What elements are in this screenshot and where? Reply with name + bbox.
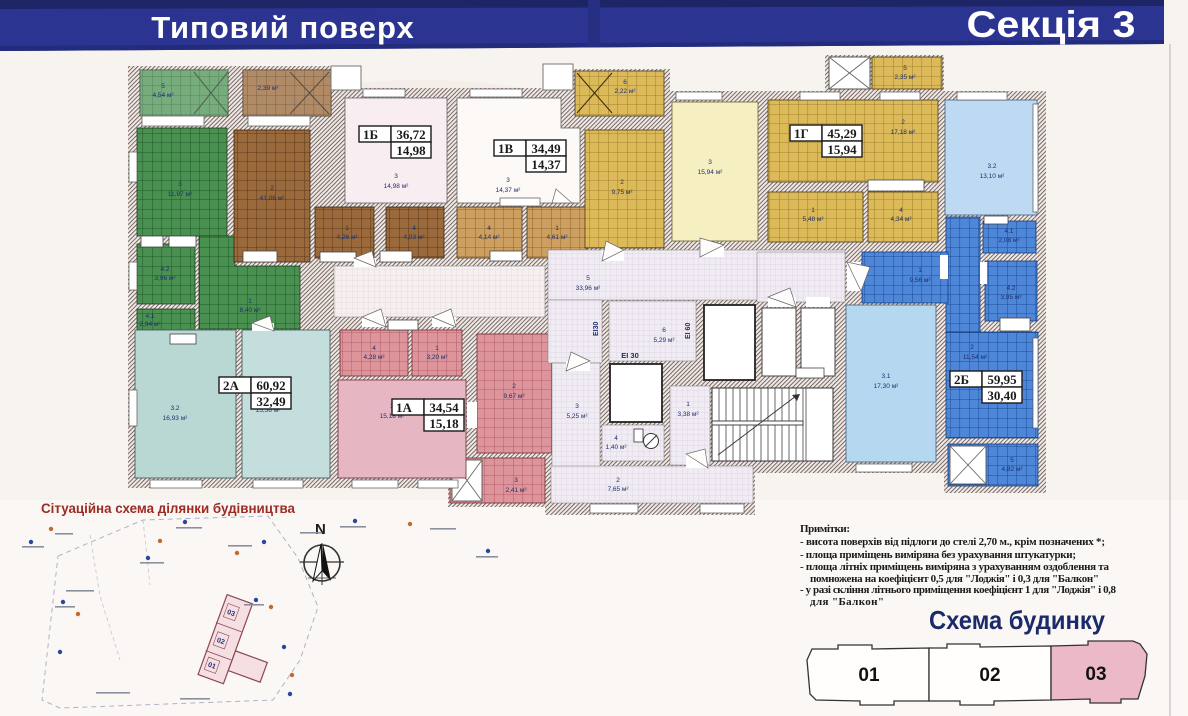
svg-text:3: 3 — [575, 403, 579, 410]
svg-text:1Б: 1Б — [363, 127, 378, 142]
svg-text:2: 2 — [970, 344, 974, 351]
svg-text:3,20 м²: 3,20 м² — [426, 354, 448, 361]
svg-text:5: 5 — [903, 65, 907, 72]
svg-text:для "Балкон": для "Балкон" — [810, 596, 884, 608]
svg-text:Секція 3: Секція 3 — [967, 4, 1136, 45]
svg-text:Схема будинку: Схема будинку — [929, 605, 1105, 635]
svg-text:1В: 1В — [498, 141, 514, 156]
svg-text:3: 3 — [394, 173, 398, 180]
svg-text:41,06 м²: 41,06 м² — [260, 195, 286, 202]
svg-text:5,29 м²: 5,29 м² — [653, 337, 675, 344]
svg-text:34,49: 34,49 — [531, 141, 561, 156]
svg-text:Примітки:: Примітки: — [800, 523, 850, 535]
svg-text:14,37 м²: 14,37 м² — [496, 187, 522, 194]
svg-text:14,98: 14,98 — [396, 143, 426, 158]
svg-text:1: 1 — [555, 225, 559, 232]
svg-text:45,29: 45,29 — [827, 126, 857, 141]
svg-text:2: 2 — [512, 383, 516, 390]
svg-text:9,75 м²: 9,75 м² — [611, 189, 633, 196]
svg-text:13,10 м²: 13,10 м² — [980, 173, 1006, 180]
svg-text:4.1: 4.1 — [145, 313, 154, 320]
svg-text:2: 2 — [616, 477, 620, 484]
svg-text:3,96 м²: 3,96 м² — [154, 275, 176, 282]
svg-text:1: 1 — [435, 345, 439, 352]
svg-text:4,28 м²: 4,28 м² — [363, 354, 385, 361]
svg-text:4,61 м²: 4,61 м² — [546, 234, 568, 241]
svg-text:1: 1 — [345, 225, 349, 232]
svg-text:ЕІ30: ЕІ30 — [593, 321, 600, 336]
svg-text:3: 3 — [178, 181, 182, 188]
svg-text:5: 5 — [1010, 457, 1014, 464]
svg-text:2,08 м²: 2,08 м² — [998, 237, 1020, 244]
svg-text:4,34 м²: 4,34 м² — [890, 216, 912, 223]
svg-text:3.2: 3.2 — [170, 405, 179, 412]
svg-text:1: 1 — [918, 267, 922, 274]
svg-text:2Б: 2Б — [954, 372, 969, 387]
svg-text:2А: 2А — [223, 378, 240, 393]
svg-text:Сітуаційна схема ділянки будів: Сітуаційна схема ділянки будівництва — [41, 501, 295, 516]
svg-text:Типовий поверх: Типовий поверх — [151, 10, 415, 45]
svg-text:9,67 м²: 9,67 м² — [503, 393, 525, 400]
svg-text:8,40 м²: 8,40 м² — [239, 307, 261, 314]
svg-text:7,65 м²: 7,65 м² — [607, 486, 629, 493]
svg-text:1: 1 — [686, 401, 690, 408]
svg-text:3: 3 — [514, 477, 518, 484]
svg-text:3,95 м²: 3,95 м² — [1000, 294, 1022, 301]
svg-text:ЕІ 60: ЕІ 60 — [685, 323, 692, 339]
svg-text:- висота поверхів від підлоги: - висота поверхів від підлоги до стелі 2… — [800, 536, 1105, 548]
svg-text:11,97 м²: 11,97 м² — [168, 191, 193, 198]
svg-text:4: 4 — [487, 225, 491, 232]
svg-text:6: 6 — [623, 79, 627, 86]
svg-text:15,94: 15,94 — [827, 142, 857, 157]
svg-text:5: 5 — [161, 83, 165, 90]
svg-text:59,95: 59,95 — [987, 372, 1017, 387]
svg-text:14,98 м²: 14,98 м² — [384, 183, 410, 190]
svg-text:4.1: 4.1 — [1004, 228, 1013, 235]
svg-text:33,96 м²: 33,96 м² — [576, 285, 602, 292]
svg-text:2: 2 — [270, 185, 274, 192]
svg-text:01: 01 — [858, 665, 880, 686]
svg-text:4,26 м²: 4,26 м² — [336, 234, 358, 241]
svg-text:3: 3 — [708, 159, 712, 166]
svg-text:9,56 м²: 9,56 м² — [909, 277, 931, 284]
svg-text:3: 3 — [506, 177, 510, 184]
svg-text:2,94 м²: 2,94 м² — [139, 321, 161, 328]
svg-text:1: 1 — [811, 207, 815, 214]
svg-text:34,54: 34,54 — [429, 400, 459, 415]
svg-text:2,39 м²: 2,39 м² — [257, 85, 279, 92]
svg-text:11,54 м²: 11,54 м² — [963, 354, 988, 361]
svg-text:- у разі скління літнього прим: - у разі скління літнього приміщення кое… — [800, 584, 1117, 596]
svg-text:2,22 м²: 2,22 м² — [614, 88, 636, 95]
svg-text:16,93 м²: 16,93 м² — [163, 415, 189, 422]
svg-text:4: 4 — [899, 207, 903, 214]
svg-text:4.2: 4.2 — [160, 266, 169, 273]
svg-text:2,41 м²: 2,41 м² — [505, 487, 527, 494]
svg-text:N: N — [315, 521, 326, 538]
svg-text:14,37: 14,37 — [531, 157, 561, 172]
svg-text:2: 2 — [901, 119, 905, 126]
svg-text:15,18: 15,18 — [429, 416, 459, 431]
svg-text:ЕІ 30: ЕІ 30 — [621, 351, 639, 360]
svg-text:02: 02 — [979, 665, 1000, 686]
svg-text:1Г: 1Г — [794, 126, 809, 141]
svg-text:4,03 м²: 4,03 м² — [403, 234, 425, 241]
svg-text:5: 5 — [586, 275, 590, 282]
svg-text:6: 6 — [662, 327, 666, 334]
svg-text:60,92: 60,92 — [256, 378, 285, 393]
svg-text:2,35 м²: 2,35 м² — [894, 74, 916, 81]
svg-text:17,30 м²: 17,30 м² — [874, 383, 900, 390]
svg-text:4,54 м²: 4,54 м² — [152, 92, 174, 99]
svg-text:4: 4 — [614, 435, 618, 442]
svg-text:30,40: 30,40 — [987, 388, 1016, 403]
svg-text:4: 4 — [412, 225, 416, 232]
svg-text:3.1: 3.1 — [881, 373, 890, 380]
svg-text:- площа приміщень виміряна без: - площа приміщень виміряна без урахуванн… — [800, 549, 1076, 561]
svg-text:32,49: 32,49 — [256, 394, 286, 409]
svg-text:17,18 м²: 17,18 м² — [891, 129, 917, 136]
svg-text:15,94 м²: 15,94 м² — [698, 169, 724, 176]
svg-text:- площа літніх приміщень вимір: - площа літніх приміщень виміряна з урах… — [800, 561, 1110, 573]
svg-text:5,25 м²: 5,25 м² — [566, 413, 588, 420]
svg-text:4: 4 — [372, 345, 376, 352]
svg-text:1,40 м²: 1,40 м² — [605, 444, 627, 451]
svg-text:1А: 1А — [396, 400, 413, 415]
svg-text:36,72: 36,72 — [396, 127, 425, 142]
svg-text:5,48 м²: 5,48 м² — [802, 216, 824, 223]
svg-text:4,14 м²: 4,14 м² — [478, 234, 500, 241]
svg-text:1: 1 — [248, 298, 252, 305]
svg-text:4.2: 4.2 — [1006, 285, 1015, 292]
svg-text:3.2: 3.2 — [987, 163, 996, 170]
svg-text:3,38 м²: 3,38 м² — [677, 411, 699, 418]
svg-text:2: 2 — [620, 179, 624, 186]
svg-text:4,82 м²: 4,82 м² — [1001, 466, 1023, 473]
svg-text:03: 03 — [1085, 664, 1106, 685]
